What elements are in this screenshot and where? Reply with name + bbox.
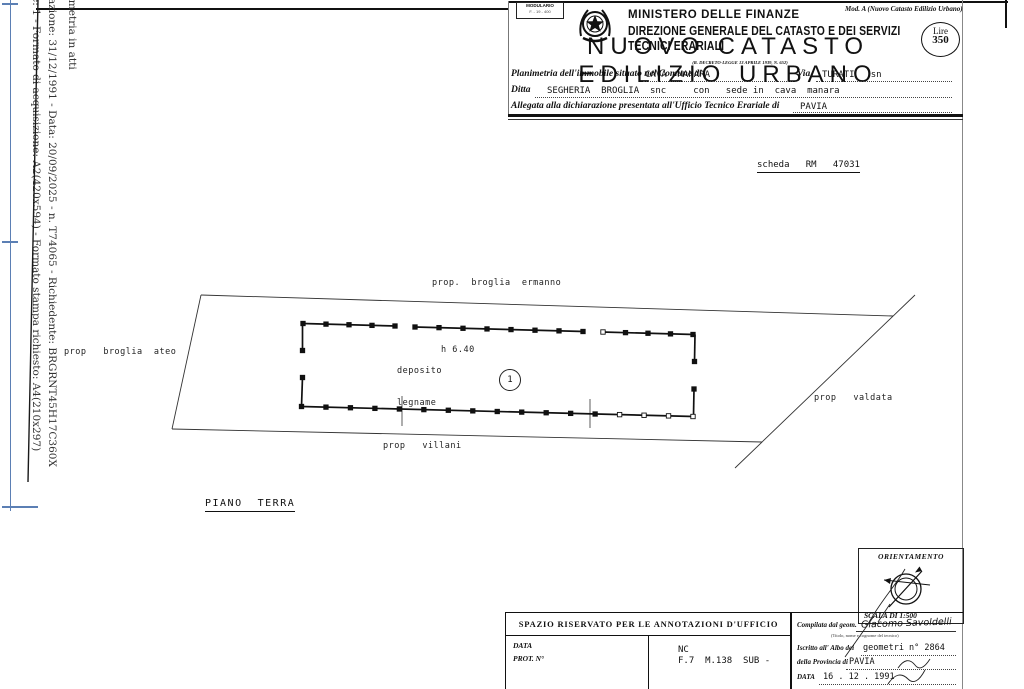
annotations-prot-label: PROT. N° <box>513 654 544 663</box>
form-ufficio-label: Allegata alla dichiarazione presentata a… <box>511 101 779 111</box>
plan-label-east-owner: prop valdata <box>814 393 893 403</box>
albo-value: geometri n° 2864 <box>863 643 945 653</box>
compiler-subnote: (Titolo, nome e cognome del tecnico) <box>831 633 899 638</box>
provincia-value: PAVIA <box>849 657 875 667</box>
form-ditta-label: Ditta <box>511 85 531 95</box>
plan-label-west-owner: prop broglia ateo <box>64 347 176 357</box>
scan-edge-mark <box>1005 0 1007 28</box>
fold-tick-bottom <box>2 506 38 508</box>
document-page: Planimetria in atti azione: 31/12/1991 -… <box>0 0 1024 689</box>
annotations-box: SPAZIO RISERVATO PER LE ANNOTAZIONI D'UF… <box>505 612 792 689</box>
header-bottom-rule-thick <box>508 114 963 117</box>
plan-label-south-owner: prop villani <box>383 441 462 451</box>
annotations-data-label: DATA <box>513 641 532 650</box>
fold-tick-top <box>2 3 18 5</box>
compiler-date-value: 16 . 12 . 1991 <box>823 672 895 682</box>
plan-deposito-line2: legname <box>397 398 442 409</box>
form-ditta-value: SEGHERIA BROGLIA snc con sede in cava ma… <box>547 86 840 96</box>
unit-number-badge: 1 <box>499 369 521 391</box>
plan-height-label: h 6.40 <box>441 345 475 355</box>
modulario-line2: F. - 19 - 400 <box>517 9 563 14</box>
compiler-name: Giacomo Savoldelli <box>861 616 952 630</box>
scheda-reference: scheda RM 47031 <box>757 160 860 173</box>
fold-tick-middle <box>2 241 18 243</box>
lire-stamp: Lire 350 <box>921 22 960 57</box>
header-bottom-rule-thin <box>508 119 963 120</box>
margin-text-format-info: e: 1 - Formato di acquisizione: A2(420x5… <box>30 0 42 451</box>
albo-label: Iscritto all' Albo dei <box>797 644 854 652</box>
provincia-label: della Provincia di <box>797 658 848 666</box>
compiler-box: Compilata dal geom. Giacomo Savoldelli (… <box>790 612 963 689</box>
compiler-label: Compilata dal geom. <box>797 621 857 629</box>
lire-stamp-value: 350 <box>922 36 959 46</box>
sheet-top-border-left <box>36 8 509 10</box>
ministry-title: MINISTERO DELLE FINANZE <box>628 9 800 21</box>
plan-deposito-label: deposito legname <box>397 345 442 430</box>
fold-line-vertical <box>10 0 11 511</box>
compiler-date-label: DATA <box>797 673 815 681</box>
building-outline <box>299 321 696 418</box>
margin-text-request-info: azione: 31/12/1991 - Data: 20/09/2025 - … <box>46 0 58 467</box>
annotations-ref-line2: F.7 M.138 SUB - <box>678 656 770 666</box>
annotations-ref-line1: NC <box>678 645 689 655</box>
annotations-divider-v <box>648 635 649 689</box>
annotations-title: SPAZIO RISERVATO PER LE ANNOTAZIONI D'UF… <box>506 613 791 629</box>
margin-text-planimetria: Planimetria in atti <box>66 0 78 70</box>
parcel-boundary <box>172 295 915 468</box>
form-comune-value: CAVA MANARA <box>645 70 710 80</box>
sheet-top-border-right <box>508 1 1008 3</box>
decree-note: (R. DECRETO-LEGGE 13 APRILE 1939, N. 652… <box>600 60 880 65</box>
form-via-value: TURATI sn <box>822 70 882 80</box>
plan-label-north-owner: prop. broglia ermanno <box>432 278 561 288</box>
form-via-label: Via <box>797 69 810 79</box>
plan-deposito-line1: deposito <box>397 366 442 377</box>
floor-label: PIANO TERRA <box>205 498 295 512</box>
orientation-title: ORIENTAMENTO <box>859 552 963 561</box>
modulario-stamp: MODULARIO F. - 19 - 400 <box>516 2 564 19</box>
mod-a-label: Mod. A (Nuovo Catasto Edilizio Urbano) <box>845 5 963 13</box>
